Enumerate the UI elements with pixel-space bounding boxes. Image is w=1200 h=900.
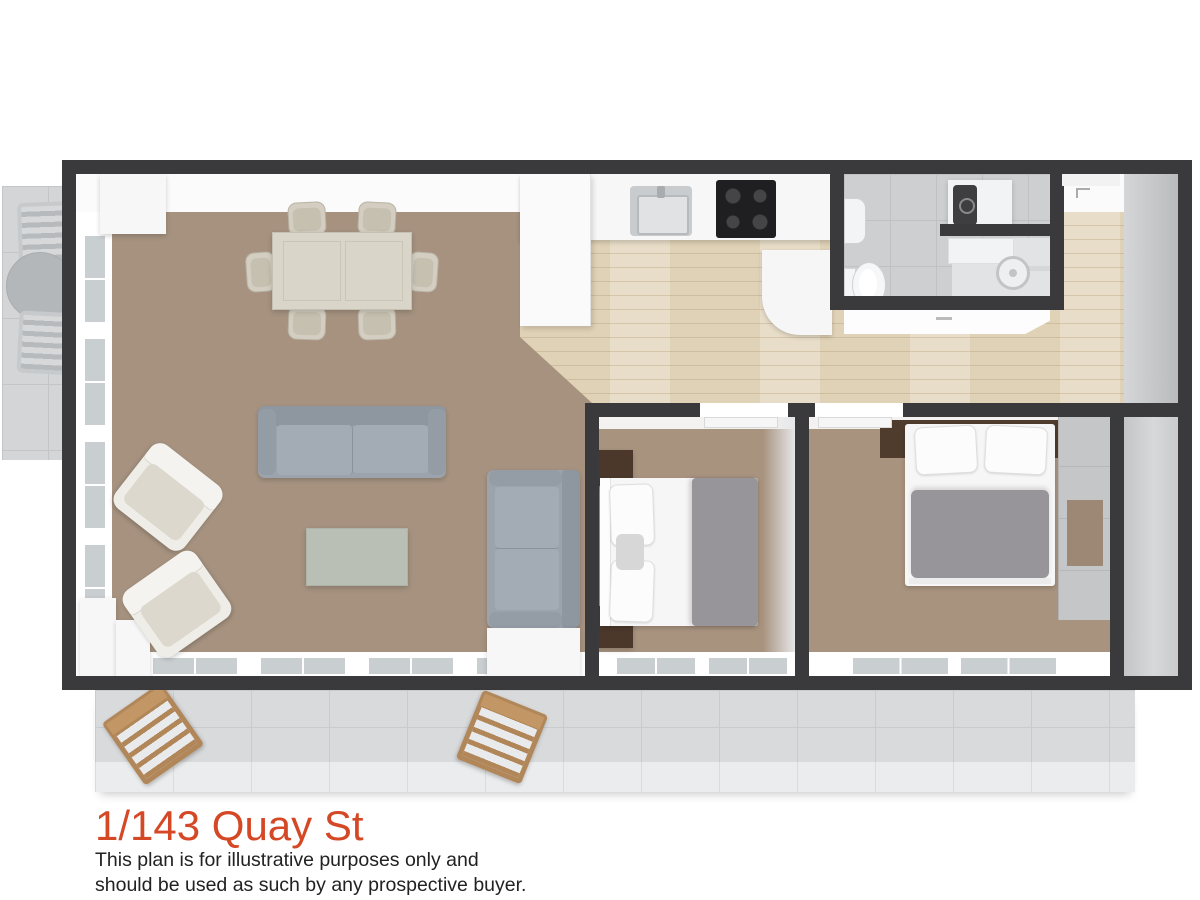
dining-chair	[357, 305, 396, 340]
laundry-counter	[844, 310, 1050, 334]
door-leaf	[704, 417, 778, 428]
window	[850, 655, 951, 677]
dining-chair	[287, 305, 326, 340]
dining-table	[272, 232, 412, 310]
bedroom1-wall-face-right	[763, 417, 795, 652]
window	[82, 439, 108, 531]
coffee-table	[306, 528, 408, 586]
sofa-arm	[258, 409, 276, 475]
kitchen-sink	[630, 186, 692, 236]
window	[366, 655, 456, 677]
bathroom-wall-bottom	[830, 296, 1064, 310]
cooktop	[716, 180, 776, 238]
side-corridor-floor	[1124, 417, 1178, 676]
entry-door	[1062, 174, 1120, 186]
toilet-seat	[859, 269, 877, 299]
outer-wall-right	[1178, 160, 1192, 690]
sofa-three-seat	[258, 406, 446, 478]
address-title: 1/143 Quay St	[95, 804, 526, 848]
bathroom-wall-left	[830, 174, 844, 310]
bathroom-partition	[940, 224, 1064, 236]
window	[82, 336, 108, 428]
bed-double	[905, 424, 1055, 586]
shower-head	[996, 256, 1030, 290]
bed-pillow	[914, 424, 978, 475]
sofa-cushion	[495, 487, 559, 549]
bed-pillow	[984, 424, 1048, 475]
wall-living-bedroom1	[585, 403, 599, 690]
sofa-two-seat	[487, 470, 580, 628]
wall-bedroom2-corridor	[1110, 403, 1124, 690]
dining-table-panel	[345, 241, 403, 301]
hall-cabinet	[100, 174, 166, 234]
washing-machine	[948, 180, 1012, 230]
bathroom-sink	[844, 198, 866, 244]
balcony-tiles-light-row	[95, 762, 1135, 792]
balcony-floor	[95, 690, 1135, 792]
washing-machine-drum	[959, 198, 975, 214]
caption-block: 1/143 Quay St This plan is for illustrat…	[95, 804, 526, 899]
bathroom-wall-right	[1050, 174, 1064, 310]
disclaimer-line-2: should be used as such by any prospectiv…	[95, 873, 526, 898]
sofa-arm	[489, 612, 562, 628]
window	[258, 655, 348, 677]
bed-foot-rail	[909, 578, 1051, 584]
counter-detail	[936, 317, 952, 320]
accent-pillow	[616, 534, 644, 570]
window	[150, 655, 240, 677]
side-table	[487, 628, 580, 676]
outer-wall-bottom	[62, 676, 1192, 690]
sofa-arm	[489, 470, 562, 486]
wardrobe-niche	[1067, 500, 1103, 566]
window	[614, 655, 698, 677]
balcony-tiles	[95, 690, 1135, 762]
window	[82, 233, 108, 325]
bedroom-wall-top	[903, 403, 1192, 417]
bed-duvet	[911, 490, 1049, 578]
sofa-cushion	[277, 425, 353, 475]
bed-duvet	[692, 478, 758, 626]
disclaimer-line-1: This plan is for illustrative purposes o…	[95, 848, 526, 873]
window	[958, 655, 1059, 677]
sofa-cushion	[353, 425, 428, 473]
sofa-arm	[428, 409, 446, 475]
bedroom-wall-top	[585, 403, 700, 417]
wardrobe	[1058, 414, 1111, 620]
sink-basin	[637, 195, 689, 235]
sofa-back	[562, 470, 580, 628]
window	[706, 655, 790, 677]
sofa-cushion	[495, 549, 559, 610]
wall-bedroom1-bedroom2	[795, 403, 809, 690]
bed-double	[600, 478, 758, 626]
entry-wall-face	[1124, 174, 1178, 403]
kitchen-corner-unit	[762, 250, 832, 335]
entry-door-handle	[1076, 188, 1090, 198]
washing-machine-door	[953, 185, 977, 225]
dining-table-panel	[283, 241, 341, 301]
outer-wall-top	[62, 160, 1192, 174]
kitchen-cabinet-tall	[520, 174, 591, 326]
corner-cabinet	[80, 598, 116, 676]
floor-plan-page: 1/143 Quay St This plan is for illustrat…	[0, 0, 1200, 900]
sink-faucet	[657, 186, 665, 198]
sofa-back	[258, 406, 446, 426]
outer-wall-left	[62, 160, 76, 690]
shower-head-center	[1009, 269, 1017, 277]
door-leaf	[818, 417, 892, 428]
